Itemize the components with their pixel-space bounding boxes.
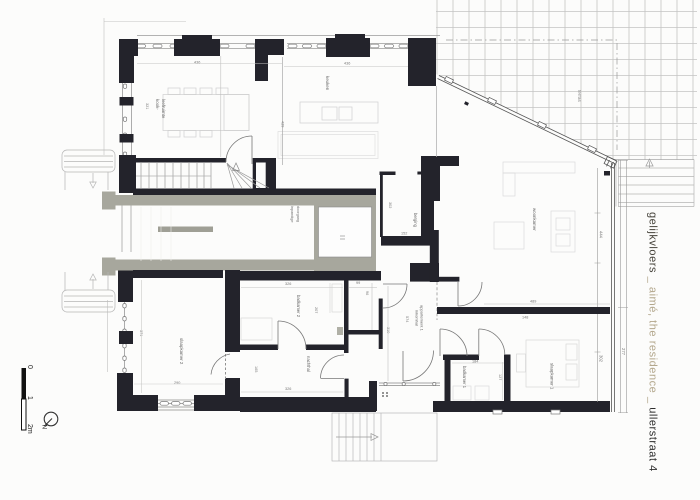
svg-text:489: 489 <box>530 300 536 304</box>
svg-text:321: 321 <box>145 103 149 109</box>
svg-text:0: 0 <box>26 365 33 369</box>
svg-text:badkamer 2: badkamer 2 <box>296 295 301 318</box>
svg-text:574: 574 <box>405 316 409 322</box>
svg-text:302: 302 <box>388 202 392 208</box>
svg-text:290: 290 <box>174 381 180 385</box>
svg-text:96: 96 <box>365 291 369 295</box>
svg-text:appartement 1: appartement 1 <box>420 305 425 332</box>
svg-text:371: 371 <box>139 330 143 336</box>
svg-text:badkamer 1: badkamer 1 <box>462 366 467 389</box>
svg-text:207: 207 <box>314 307 318 313</box>
svg-text:doorgang: doorgang <box>296 206 300 222</box>
svg-text:277: 277 <box>621 348 626 356</box>
svg-text:127: 127 <box>498 374 502 380</box>
svg-text:326: 326 <box>285 282 291 286</box>
svg-text:2m: 2m <box>26 424 33 434</box>
svg-text:keuken: keuken <box>325 76 330 91</box>
svg-text:302: 302 <box>599 355 604 363</box>
svg-text:nachthal: nachthal <box>306 356 311 372</box>
svg-text:slaapkamer 2: slaapkamer 2 <box>179 338 184 365</box>
svg-text:444: 444 <box>599 231 604 239</box>
svg-text:429: 429 <box>281 121 285 127</box>
svg-text:148: 148 <box>522 316 528 320</box>
svg-text:436: 436 <box>194 61 200 65</box>
svg-text:1: 1 <box>26 396 33 400</box>
svg-text:N: N <box>41 425 48 430</box>
svg-text:436: 436 <box>344 62 350 66</box>
svg-text:152: 152 <box>401 232 407 236</box>
svg-text:woonkamer: woonkamer <box>532 208 537 231</box>
svg-text:leefruimte: leefruimte <box>161 99 166 119</box>
svg-text:165: 165 <box>254 366 258 372</box>
svg-text:gelijkvloers _ aimé, the resid: gelijkvloers _ aimé, the residence _ ull… <box>647 212 659 472</box>
svg-text:inpandige: inpandige <box>290 206 294 222</box>
svg-text:326: 326 <box>285 387 291 391</box>
svg-text:kook-: kook- <box>155 99 160 110</box>
svg-text:berging: berging <box>413 213 418 228</box>
svg-text:terras: terras <box>577 90 582 102</box>
svg-text:slaapkamer 1: slaapkamer 1 <box>550 363 555 390</box>
svg-text:99: 99 <box>356 281 360 285</box>
svg-text:inkomhal: inkomhal <box>415 310 420 326</box>
